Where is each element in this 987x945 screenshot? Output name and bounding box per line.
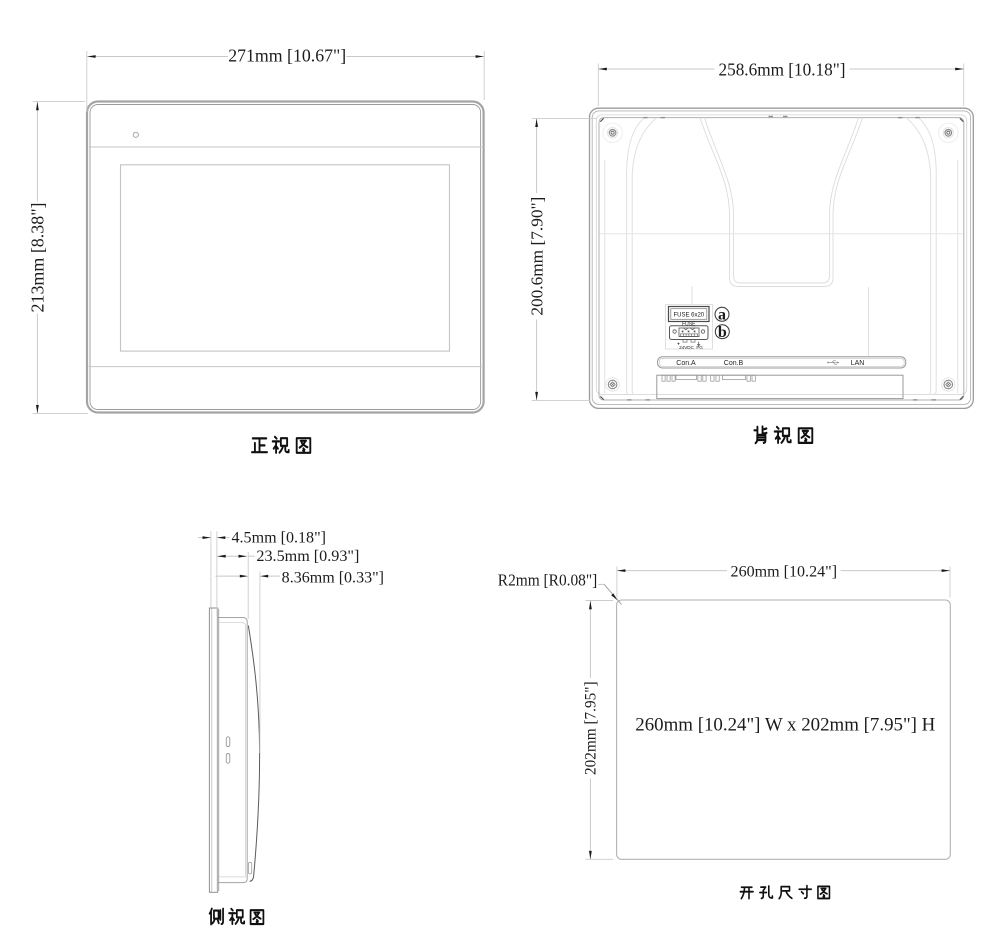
svg-text:4.5mm [0.18"]: 4.5mm [0.18"]	[232, 530, 327, 547]
svg-text:b: b	[718, 324, 727, 341]
svg-text:24VDC: 24VDC	[679, 345, 694, 350]
svg-text:23.5mm [0.93"]: 23.5mm [0.93"]	[256, 548, 359, 565]
svg-text:213mm [8.38"]: 213mm [8.38"]	[27, 203, 47, 313]
svg-text:260mm [10.24"] W x 202mm [7.95: 260mm [10.24"] W x 202mm [7.95"] H	[635, 714, 935, 735]
svg-text:R2mm [R0.08"]: R2mm [R0.08"]	[498, 571, 598, 590]
svg-text:260mm [10.24"]: 260mm [10.24"]	[731, 564, 838, 581]
svg-text:FUSE 6x20: FUSE 6x20	[673, 312, 704, 318]
svg-text:258.6mm [10.18"]: 258.6mm [10.18"]	[719, 60, 846, 80]
svg-text:Con.A: Con.A	[676, 360, 696, 367]
svg-text:LAN: LAN	[851, 360, 865, 367]
svg-text:Con.B: Con.B	[724, 360, 744, 367]
svg-text:8.36mm [0.33"]: 8.36mm [0.33"]	[282, 569, 384, 586]
svg-text:271mm [10.67"]: 271mm [10.67"]	[228, 45, 346, 65]
svg-text:202mm [7.95"]: 202mm [7.95"]	[583, 681, 600, 775]
svg-text:FG: FG	[696, 345, 703, 350]
svg-text:FUSE: FUSE	[682, 321, 696, 327]
svg-text:200.6mm [7.90"]: 200.6mm [7.90"]	[528, 197, 547, 316]
svg-text:a: a	[718, 307, 726, 324]
